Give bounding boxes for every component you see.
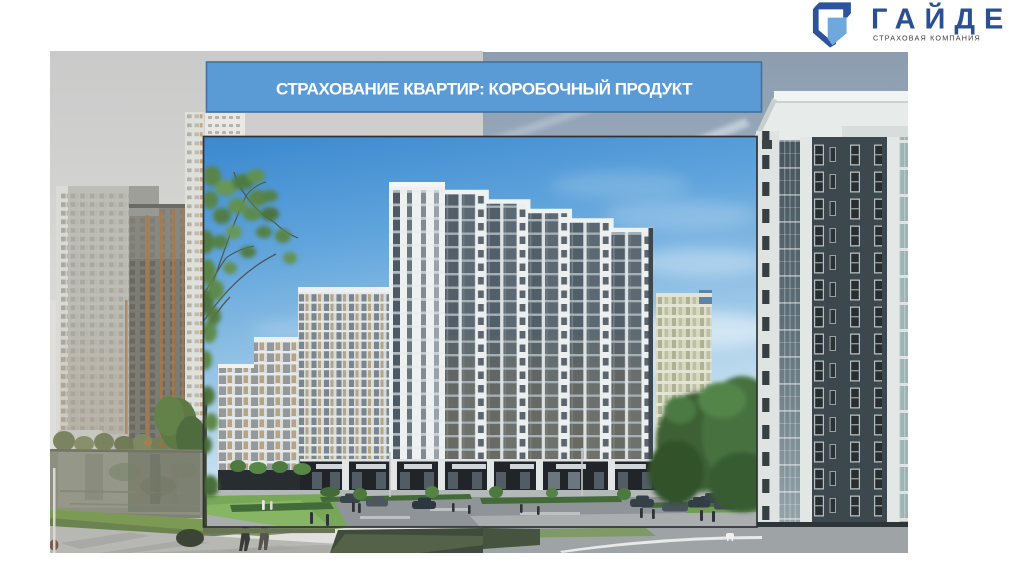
svg-text:СТРАХОВАЯ КОМПАНИЯ: СТРАХОВАЯ КОМПАНИЯ (873, 34, 981, 43)
svg-text:СТРАХОВАНИЕ КВАРТИР: КОРОБОЧНЫ: СТРАХОВАНИЕ КВАРТИР: КОРОБОЧНЫЙ ПРОДУКТ (276, 80, 693, 99)
svg-text:ГАЙДЕ: ГАЙДЕ (871, 2, 1012, 36)
